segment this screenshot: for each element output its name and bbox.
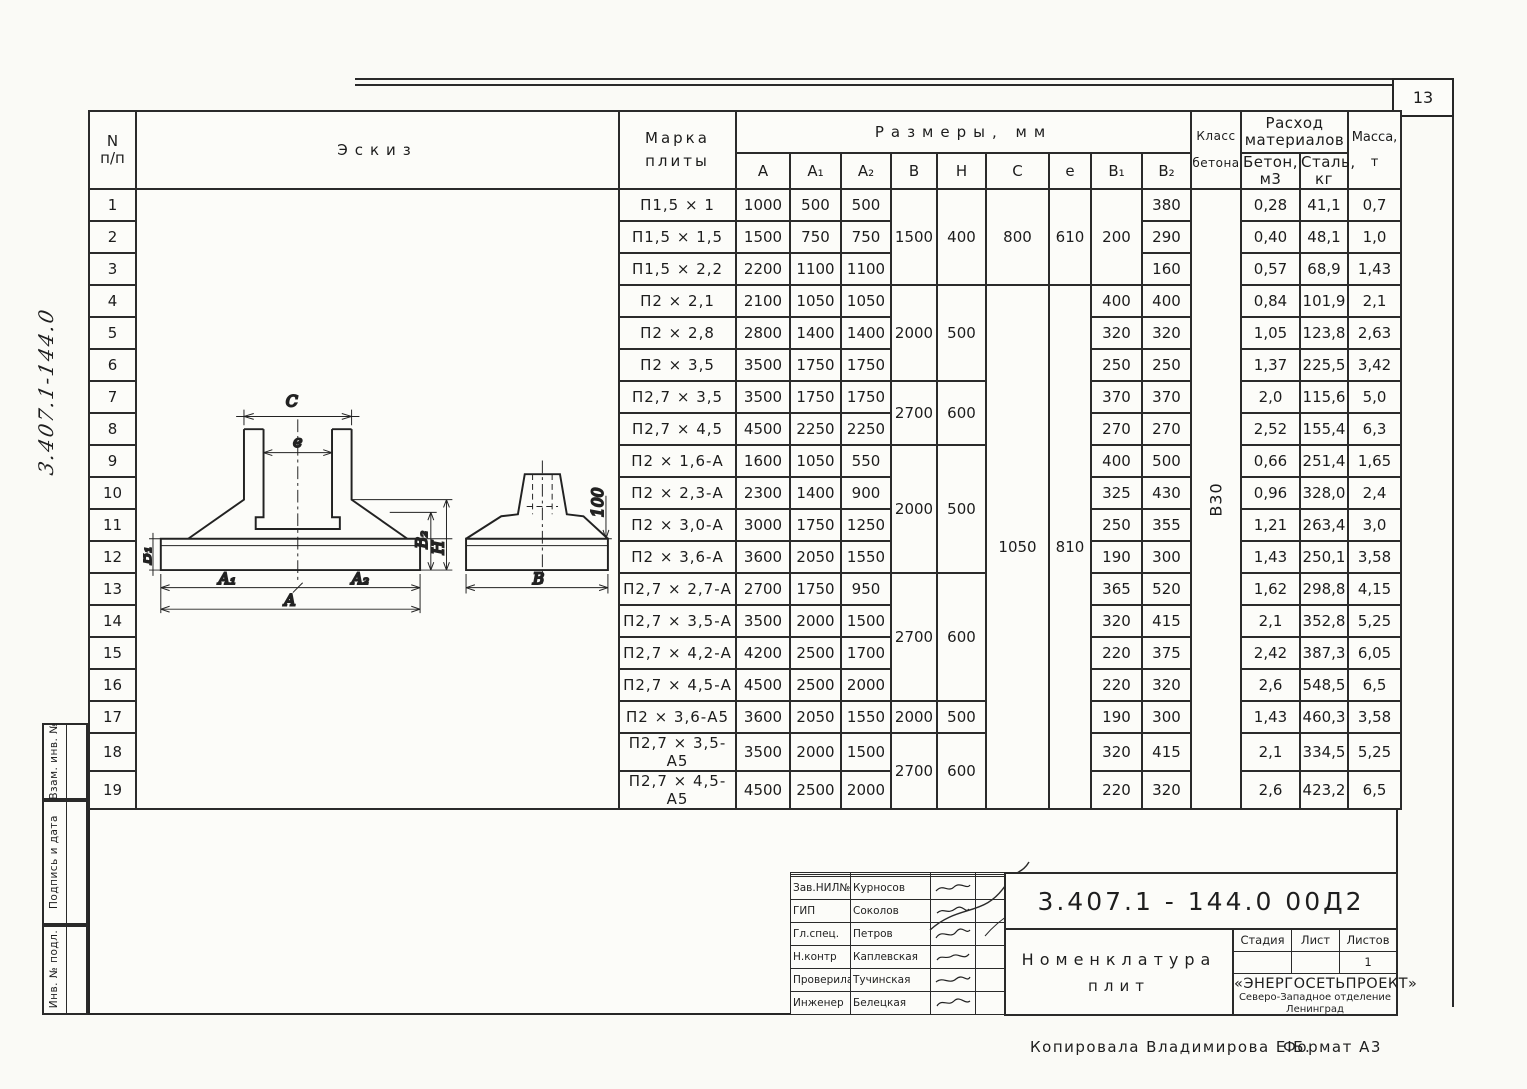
cell-steel: 101,9 (1300, 285, 1348, 317)
sheet-label: Лист (1292, 930, 1340, 951)
cell-steel: 251,4 (1300, 445, 1348, 477)
cell-b1: 220 (1091, 771, 1142, 809)
materials-header-line1: Расход (1242, 115, 1347, 132)
steel-header-line1: Сталь, (1301, 154, 1347, 171)
cell-mass: 2,4 (1348, 477, 1401, 509)
col-header-sizes: Размеры, мм (736, 111, 1191, 153)
cell-a1: 1750 (790, 349, 841, 381)
cell-concrete: 1,21 (1241, 509, 1300, 541)
cell-h: 400 (937, 189, 986, 285)
cell-steel: 423,2 (1300, 771, 1348, 809)
mass-header-line2: т (1349, 154, 1400, 171)
cell-a1: 500 (790, 189, 841, 221)
organization-name: «ЭНЕРГОСЕТЬПРОЕКТ» (1234, 976, 1396, 992)
dim-label-e: e (293, 432, 302, 451)
cell-a2: 1250 (841, 509, 891, 541)
cell-b1: 400 (1091, 445, 1142, 477)
num-header-line2: п/п (90, 150, 135, 167)
cell-concrete: 2,1 (1241, 733, 1300, 771)
cell-steel: 334,5 (1300, 733, 1348, 771)
cell-concrete: 0,40 (1241, 221, 1300, 253)
signature-role: Проверила (791, 968, 851, 991)
signature-role: ГИП (791, 899, 851, 922)
cell-mark: П2 × 3,5 (619, 349, 736, 381)
cell-h: 500 (937, 285, 986, 381)
cell-a2: 1550 (841, 701, 891, 733)
cell-a: 3000 (736, 509, 790, 541)
cell-b2: 375 (1142, 637, 1191, 669)
cell-num: 16 (89, 669, 136, 701)
cell-concrete: 1,37 (1241, 349, 1300, 381)
cell-a: 1600 (736, 445, 790, 477)
signature-mark (934, 951, 972, 963)
cell-a2: 1750 (841, 381, 891, 413)
cell-num: 8 (89, 413, 136, 445)
cell-a2: 1700 (841, 637, 891, 669)
organization-branch: Северо-Западное отделение (1234, 992, 1396, 1004)
col-header-c: С (986, 153, 1049, 189)
col-header-materials: Расход материалов (1241, 111, 1348, 153)
cell-b1: 190 (1091, 701, 1142, 733)
cell-b1: 190 (1091, 541, 1142, 573)
col-header-concrete: Бетон, м3 (1241, 153, 1300, 189)
cell-b2: 300 (1142, 541, 1191, 573)
signature-name: Соколов (851, 899, 931, 922)
cell-b2: 320 (1142, 317, 1191, 349)
dim-label-a: A (282, 590, 295, 609)
cell-a2: 1100 (841, 253, 891, 285)
col-header-num: N п/п (89, 111, 136, 189)
col-header-h: Н (937, 153, 986, 189)
col-header-b: В (891, 153, 937, 189)
cell-b1: 270 (1091, 413, 1142, 445)
cell-concrete: 2,1 (1241, 605, 1300, 637)
cell-a1: 1750 (790, 573, 841, 605)
sidebar-label-inv: Инв. № подл. (48, 914, 60, 1024)
cell-num: 14 (89, 605, 136, 637)
cell-num: 3 (89, 253, 136, 285)
cell-e: 810 (1049, 285, 1091, 809)
signature-mark (934, 974, 972, 986)
cell-a: 3600 (736, 701, 790, 733)
cell-steel: 387,3 (1300, 637, 1348, 669)
col-header-a: А (736, 153, 790, 189)
document-number: 3.407.1 - 144.0 00Д2 (1037, 887, 1364, 916)
sidebar-box-vzam: Взам. инв. № (42, 723, 88, 800)
signature-role: Инженер (791, 991, 851, 1014)
cell-b: 2000 (891, 445, 937, 573)
sheet-value (1292, 952, 1340, 973)
cell-a: 3500 (736, 605, 790, 637)
cell-a1: 1400 (790, 477, 841, 509)
cell-a: 3500 (736, 733, 790, 771)
cell-a2: 900 (841, 477, 891, 509)
signature-row: Инженер Белецкая (791, 991, 1007, 1014)
cell-a: 2700 (736, 573, 790, 605)
format-note: Формат А3 (1283, 1038, 1382, 1056)
cell-a2: 750 (841, 221, 891, 253)
cell-num: 5 (89, 317, 136, 349)
signature-name: Петров (851, 922, 931, 945)
cell-num: 12 (89, 541, 136, 573)
cell-a: 4500 (736, 669, 790, 701)
page-number: 13 (1413, 88, 1433, 107)
cell-num: 15 (89, 637, 136, 669)
cell-concrete-class: В30 (1191, 189, 1241, 809)
cell-mass: 6,3 (1348, 413, 1401, 445)
steel-header-line2: кг (1301, 171, 1347, 188)
cell-b1: 220 (1091, 637, 1142, 669)
sheet-right-border-line (1452, 117, 1454, 1007)
cell-b2: 415 (1142, 605, 1191, 637)
margin-doc-code: 3.407.1-144.0 (34, 306, 58, 477)
class-header-line2: бетона (1192, 155, 1240, 172)
cell-a2: 950 (841, 573, 891, 605)
header-row-1: N п/п Эскиз Марка плиты Размеры, мм Клас… (89, 111, 1401, 153)
sidebar-label-podpis: Подпись и дата (48, 807, 60, 917)
cell-num: 9 (89, 445, 136, 477)
cell-steel: 328,0 (1300, 477, 1348, 509)
cell-mark: П2 × 3,6-А5 (619, 701, 736, 733)
cell-b: 2000 (891, 701, 937, 733)
cell-b2: 320 (1142, 771, 1191, 809)
cell-num: 19 (89, 771, 136, 809)
cell-b2: 520 (1142, 573, 1191, 605)
cell-b2: 380 (1142, 189, 1191, 221)
cell-mass: 3,0 (1348, 509, 1401, 541)
cell-mass: 3,42 (1348, 349, 1401, 381)
cell-a1: 2050 (790, 541, 841, 573)
cell-b2: 430 (1142, 477, 1191, 509)
table-row: 1 C e B₁ (89, 189, 1401, 221)
sheet-top-border-line2 (355, 84, 1392, 86)
cell-mark: П2 × 3,0-А (619, 509, 736, 541)
col-header-mark: Марка плиты (619, 111, 736, 189)
cell-steel: 155,4 (1300, 413, 1348, 445)
cell-mark: П2,7 × 4,5 (619, 413, 736, 445)
cell-a2: 1500 (841, 733, 891, 771)
dim-label-100: 100 (588, 487, 607, 517)
cell-a1: 2000 (790, 733, 841, 771)
cell-a2: 2000 (841, 669, 891, 701)
cell-mass: 1,43 (1348, 253, 1401, 285)
cell-a: 3600 (736, 541, 790, 573)
mark-header-line1: Марка (620, 130, 735, 147)
sheet-top-border-line (355, 78, 1392, 80)
cell-h: 600 (937, 733, 986, 809)
signature-name: Каплевская (851, 945, 931, 968)
cell-a2: 1750 (841, 349, 891, 381)
col-header-a1: А₁ (790, 153, 841, 189)
cell-num: 17 (89, 701, 136, 733)
plate-sketch: C e B₁ B₂ H A₁ A₂ (143, 392, 613, 618)
cell-num: 2 (89, 221, 136, 253)
cell-a2: 1550 (841, 541, 891, 573)
cell-mass: 5,25 (1348, 605, 1401, 637)
cell-c: 1050 (986, 285, 1049, 809)
cell-steel: 298,8 (1300, 573, 1348, 605)
cell-b1: 320 (1091, 605, 1142, 637)
sketch-cell: C e B₁ B₂ H A₁ A₂ (136, 189, 619, 809)
cell-a1: 2500 (790, 669, 841, 701)
cell-b1: 325 (1091, 477, 1142, 509)
cell-b2: 270 (1142, 413, 1191, 445)
cell-b2: 355 (1142, 509, 1191, 541)
mark-header-line2: плиты (620, 153, 735, 170)
cell-mass: 6,5 (1348, 669, 1401, 701)
signature-role: Гл.спец. (791, 922, 851, 945)
stage-header-row: Стадия Лист Листов (1234, 930, 1396, 952)
cell-num: 1 (89, 189, 136, 221)
sidebar-box-podpis: Подпись и дата (42, 800, 88, 925)
cell-b2: 415 (1142, 733, 1191, 771)
cell-mark: П2,7 × 4,5-А5 (619, 771, 736, 809)
cell-a1: 1400 (790, 317, 841, 349)
cell-b: 2700 (891, 733, 937, 809)
signature-name: Курносов (851, 876, 931, 899)
cell-mass: 0,7 (1348, 189, 1401, 221)
cell-steel: 548,5 (1300, 669, 1348, 701)
cell-mass: 6,05 (1348, 637, 1401, 669)
cell-steel: 115,6 (1300, 381, 1348, 413)
cell-a1: 2500 (790, 637, 841, 669)
cell-h: 500 (937, 445, 986, 573)
cell-b1: 320 (1091, 317, 1142, 349)
scanned-drawing-sheet: { "page": { "number": "13", "margin_code… (0, 0, 1527, 1089)
concrete-class-value: В30 (1207, 475, 1226, 523)
organization-box: «ЭНЕРГОСЕТЬПРОЕКТ» Северо-Западное отдел… (1234, 974, 1396, 1020)
signature-role: Зав.НИЛ№2 (791, 876, 851, 899)
cell-b1: 370 (1091, 381, 1142, 413)
cell-num: 4 (89, 285, 136, 317)
cell-h: 500 (937, 701, 986, 733)
cell-a1: 1050 (790, 445, 841, 477)
cell-num: 13 (89, 573, 136, 605)
cell-a: 3500 (736, 349, 790, 381)
cell-num: 10 (89, 477, 136, 509)
cell-mass: 6,5 (1348, 771, 1401, 809)
dim-label-a1: A₁ (217, 569, 237, 588)
cell-a: 2200 (736, 253, 790, 285)
cell-a: 4500 (736, 413, 790, 445)
cell-steel: 48,1 (1300, 221, 1348, 253)
cell-mark: П2,7 × 2,7-А (619, 573, 736, 605)
signature-row: Н.контр Каплевская (791, 945, 1007, 968)
copy-note: Копировала Владимирова Е.Б. (1030, 1038, 1311, 1056)
document-title-line1: Номенклатура (1022, 950, 1217, 969)
cell-concrete: 0,57 (1241, 253, 1300, 285)
sidebar-label-vzam: Взам. инв. № (48, 706, 60, 816)
cell-a2: 2000 (841, 771, 891, 809)
signature-name: Тучинская (851, 968, 931, 991)
cell-b2: 250 (1142, 349, 1191, 381)
cell-steel: 123,8 (1300, 317, 1348, 349)
cell-b2: 160 (1142, 253, 1191, 285)
col-header-sketch: Эскиз (136, 111, 619, 189)
cell-concrete: 2,42 (1241, 637, 1300, 669)
cell-concrete: 2,6 (1241, 669, 1300, 701)
cell-a2: 2250 (841, 413, 891, 445)
col-header-e: е (1049, 153, 1091, 189)
cell-concrete: 0,66 (1241, 445, 1300, 477)
cell-a: 2100 (736, 285, 790, 317)
cell-concrete: 1,43 (1241, 701, 1300, 733)
class-header-line1: Класс (1192, 128, 1240, 145)
cell-b2: 290 (1142, 221, 1191, 253)
cell-a1: 1750 (790, 381, 841, 413)
cell-b: 2000 (891, 285, 937, 381)
cell-b2: 320 (1142, 669, 1191, 701)
sheets-value: 1 (1340, 952, 1396, 973)
document-title-box: Номенклатура плит (1004, 928, 1234, 1016)
cell-steel: 352,8 (1300, 605, 1348, 637)
cell-e: 610 (1049, 189, 1091, 285)
cell-a1: 2250 (790, 413, 841, 445)
cell-b2: 370 (1142, 381, 1191, 413)
cell-b: 1500 (891, 189, 937, 285)
cell-mark: П2,7 × 3,5-А5 (619, 733, 736, 771)
cell-a1: 2500 (790, 771, 841, 809)
cell-concrete: 2,52 (1241, 413, 1300, 445)
signature-mark-cell (931, 968, 976, 991)
cell-steel: 41,1 (1300, 189, 1348, 221)
concrete-header-line2: м3 (1242, 171, 1299, 188)
cell-a1: 1100 (790, 253, 841, 285)
cell-a: 4200 (736, 637, 790, 669)
cell-a: 2800 (736, 317, 790, 349)
cell-mass: 3,58 (1348, 701, 1401, 733)
cell-steel: 68,9 (1300, 253, 1348, 285)
cell-concrete: 0,28 (1241, 189, 1300, 221)
stage-value-row: 1 (1234, 952, 1396, 974)
col-header-a2: А₂ (841, 153, 891, 189)
cell-steel: 250,1 (1300, 541, 1348, 573)
stage-value (1234, 952, 1292, 973)
cell-b1: 250 (1091, 349, 1142, 381)
cell-mark: П2 × 2,8 (619, 317, 736, 349)
cell-mark: П2 × 2,1 (619, 285, 736, 317)
signature-row: Проверила Тучинская (791, 968, 1007, 991)
signature-mark (934, 997, 972, 1009)
col-header-class: Класс бетона (1191, 111, 1241, 189)
organization-city: Ленинград (1234, 1004, 1396, 1016)
signature-mark-cell (931, 945, 976, 968)
cell-steel: 263,4 (1300, 509, 1348, 541)
cell-steel: 460,3 (1300, 701, 1348, 733)
cell-a: 1500 (736, 221, 790, 253)
cell-mark: П2,7 × 3,5 (619, 381, 736, 413)
cell-a: 3500 (736, 381, 790, 413)
cell-mass: 1,0 (1348, 221, 1401, 253)
col-header-b2: В₂ (1142, 153, 1191, 189)
num-header-line1: N (90, 133, 135, 150)
cell-b: 2700 (891, 573, 937, 701)
cell-b1: 250 (1091, 509, 1142, 541)
dim-label-a2: A₂ (350, 569, 370, 588)
signature-mark-cell (931, 991, 976, 1014)
signature-role: Н.контр (791, 945, 851, 968)
cell-b2: 300 (1142, 701, 1191, 733)
cell-b1: 220 (1091, 669, 1142, 701)
col-header-steel: Сталь, кг (1300, 153, 1348, 189)
cell-mark: П2,7 × 4,2-А (619, 637, 736, 669)
cell-num: 11 (89, 509, 136, 541)
cell-mass: 3,58 (1348, 541, 1401, 573)
cell-num: 18 (89, 733, 136, 771)
cell-b2: 500 (1142, 445, 1191, 477)
dim-label-h: H (429, 540, 448, 555)
cell-concrete: 2,0 (1241, 381, 1300, 413)
cell-a: 2300 (736, 477, 790, 509)
signature-name: Белецкая (851, 991, 931, 1014)
cell-b1: 400 (1091, 285, 1142, 317)
cell-mass: 2,63 (1348, 317, 1401, 349)
cell-num: 7 (89, 381, 136, 413)
cell-mass: 5,0 (1348, 381, 1401, 413)
cell-mass: 5,25 (1348, 733, 1401, 771)
cell-mark: П1,5 × 1,5 (619, 221, 736, 253)
stage-sheet-box: Стадия Лист Листов 1 «ЭНЕРГОСЕТЬПРОЕКТ» … (1232, 928, 1398, 1016)
cell-mark: П2 × 2,3-А (619, 477, 736, 509)
cell-concrete: 0,96 (1241, 477, 1300, 509)
document-number-box: 3.407.1 - 144.0 00Д2 (1004, 872, 1398, 930)
cell-a2: 1400 (841, 317, 891, 349)
dim-label-c: C (286, 392, 298, 411)
cell-mark: П2,7 × 3,5-А (619, 605, 736, 637)
cell-a2: 1050 (841, 285, 891, 317)
nomenclature-table: N п/п Эскиз Марка плиты Размеры, мм Клас… (88, 110, 1402, 810)
cell-a2: 500 (841, 189, 891, 221)
cell-concrete: 0,84 (1241, 285, 1300, 317)
sheets-label: Листов (1340, 930, 1396, 951)
cell-a: 1000 (736, 189, 790, 221)
stage-label: Стадия (1234, 930, 1292, 951)
cell-a1: 2000 (790, 605, 841, 637)
cell-mark: П2 × 1,6-А (619, 445, 736, 477)
cell-a: 4500 (736, 771, 790, 809)
cell-b2: 400 (1142, 285, 1191, 317)
cell-mass: 4,15 (1348, 573, 1401, 605)
cell-a1: 2050 (790, 701, 841, 733)
cell-concrete: 2,6 (1241, 771, 1300, 809)
cell-h: 600 (937, 573, 986, 701)
cell-mass: 1,65 (1348, 445, 1401, 477)
cell-mark: П2 × 3,6-А (619, 541, 736, 573)
cell-a2: 550 (841, 445, 891, 477)
cell-mark: П1,5 × 1 (619, 189, 736, 221)
cell-b1: 365 (1091, 573, 1142, 605)
cell-mass: 2,1 (1348, 285, 1401, 317)
cell-mark: П2,7 × 4,5-А (619, 669, 736, 701)
document-title-line2: плит (1088, 977, 1150, 995)
dim-label-b: B (532, 569, 545, 588)
cell-a1: 750 (790, 221, 841, 253)
cell-a1: 1750 (790, 509, 841, 541)
cell-steel: 225,5 (1300, 349, 1348, 381)
materials-header-line2: материалов (1242, 132, 1347, 149)
cell-concrete: 1,62 (1241, 573, 1300, 605)
cell-b1: 320 (1091, 733, 1142, 771)
cell-a2: 1500 (841, 605, 891, 637)
concrete-header-line1: Бетон, (1242, 154, 1299, 171)
col-header-b1: В₁ (1091, 153, 1142, 189)
sidebar-box-inv: Инв. № подл. (42, 925, 88, 1015)
cell-b1: 200 (1091, 189, 1142, 285)
cell-num: 6 (89, 349, 136, 381)
cell-mark: П1,5 × 2,2 (619, 253, 736, 285)
cell-b: 2700 (891, 381, 937, 445)
col-header-mass: Масса, т (1348, 111, 1401, 189)
